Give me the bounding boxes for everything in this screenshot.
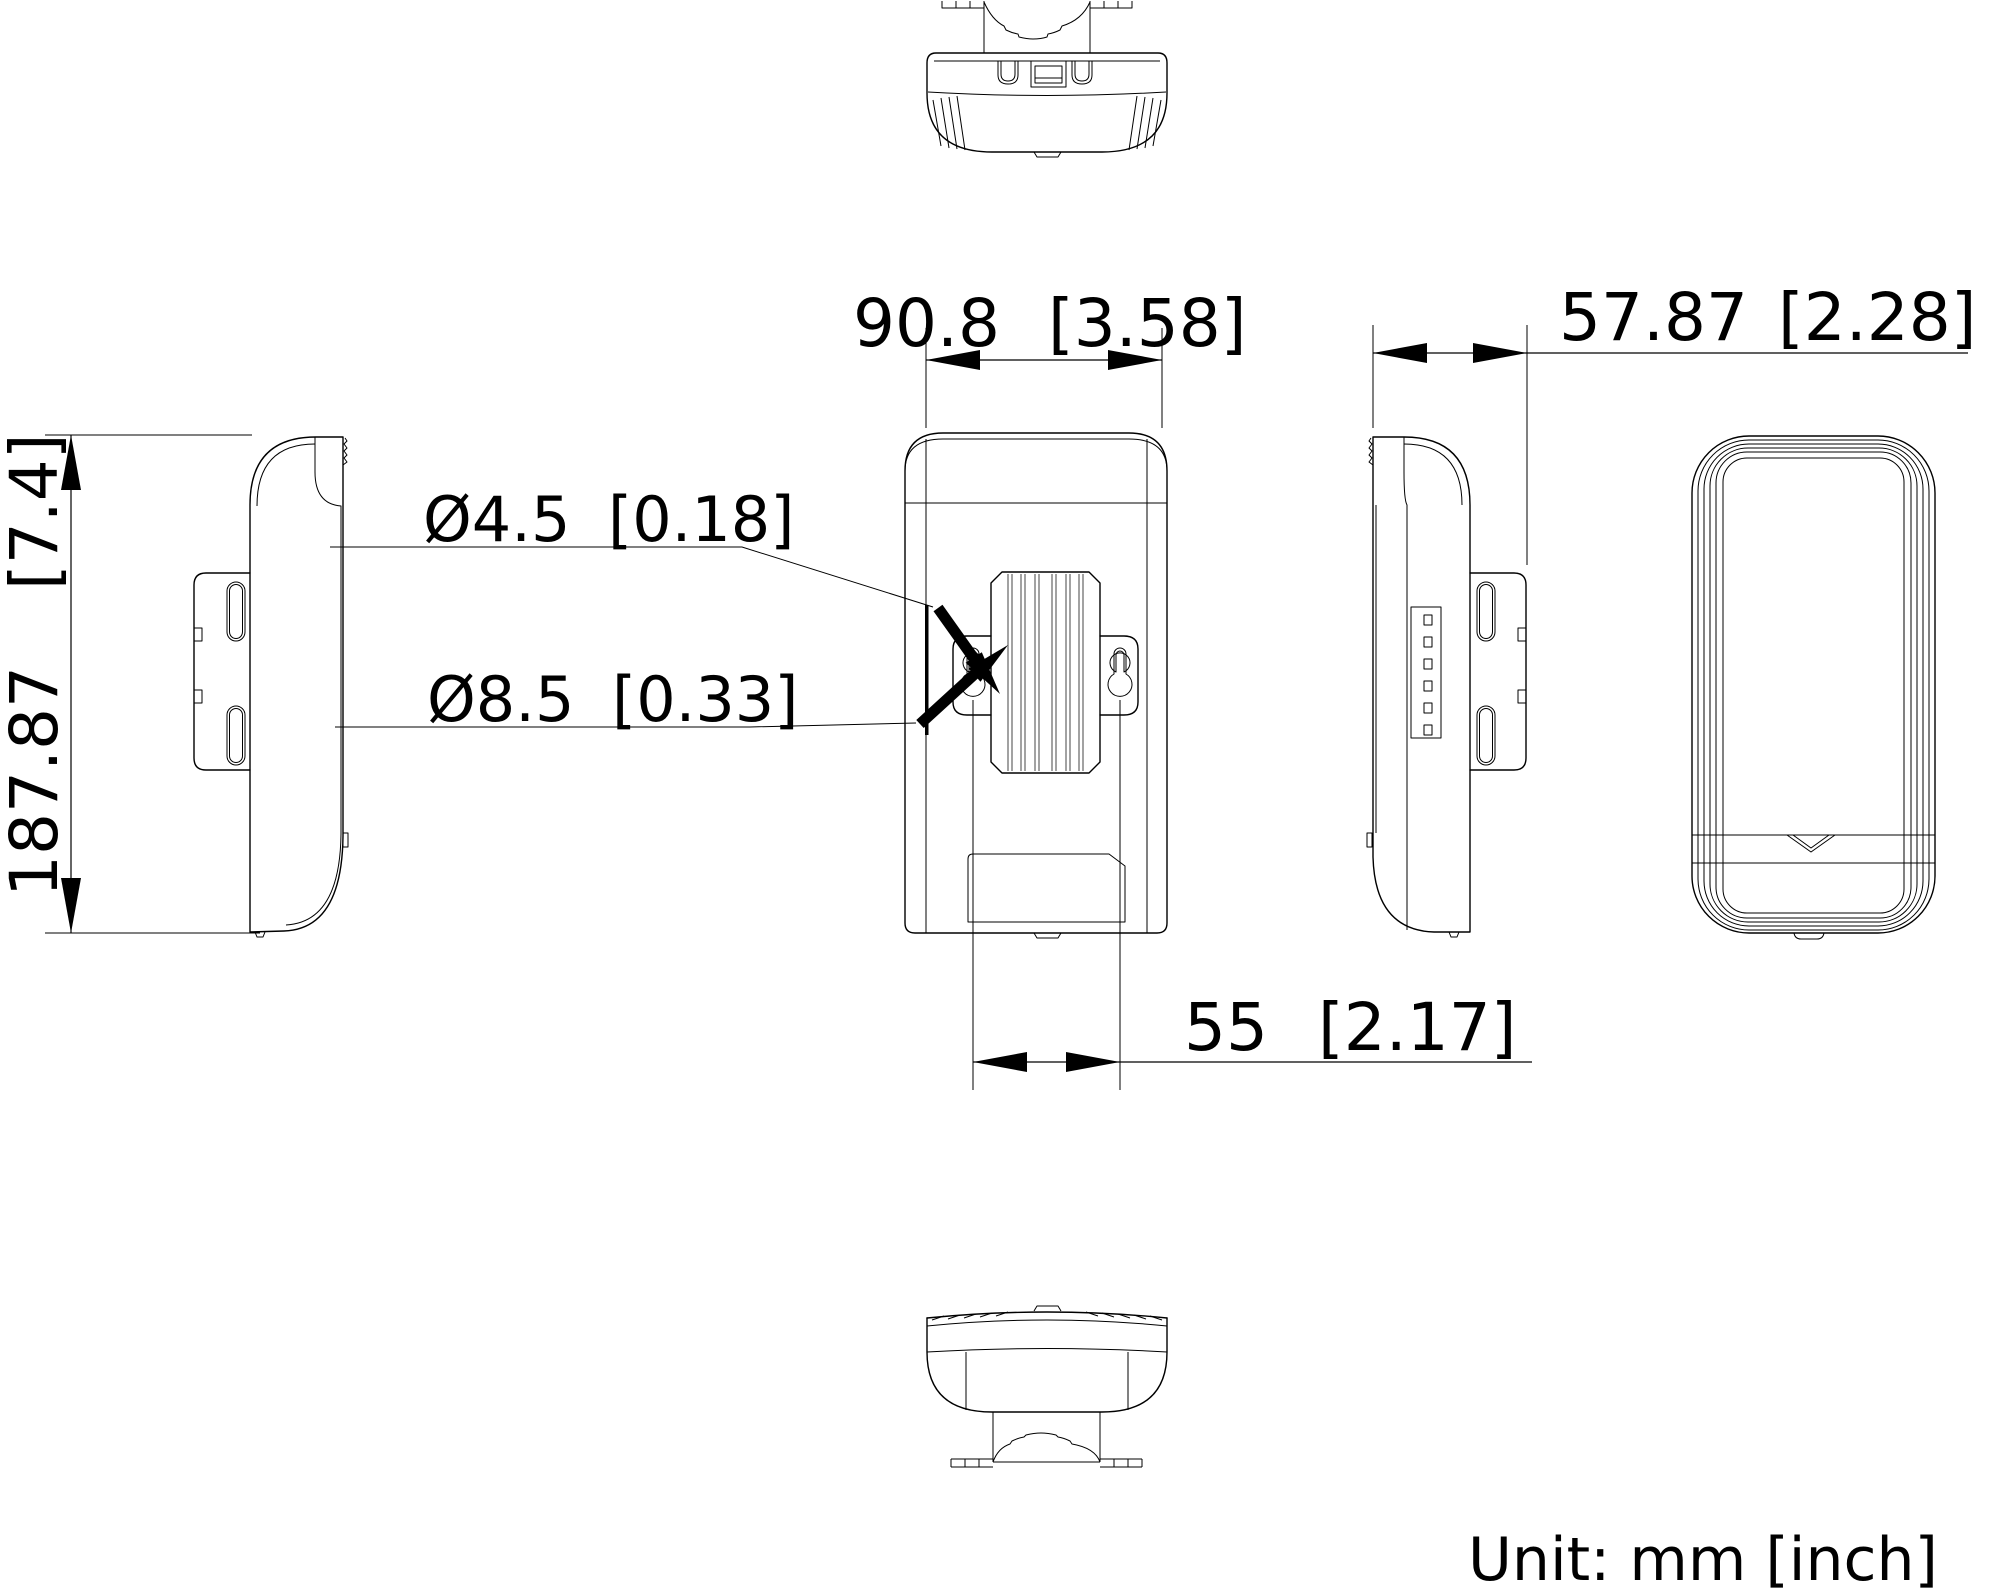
right-side-view: [1367, 437, 1526, 937]
dim-hole-spacing: 55 [2.17]: [973, 700, 1532, 1090]
bottom-view-outline: [927, 1318, 1167, 1412]
back-view-outline: [905, 433, 1167, 933]
dim-width-mm: 90.8: [853, 285, 1000, 362]
heatsink-fins: [1008, 574, 1083, 771]
right-bracket: [1470, 573, 1526, 770]
side-button-right: [1367, 833, 1372, 847]
dim-width-inch: [3.58]: [1048, 285, 1246, 362]
front-view-outline: [1692, 436, 1935, 933]
label-circle-mm: Ø8.5: [427, 663, 574, 736]
front-face: [1723, 458, 1904, 913]
front-chevron: [1787, 835, 1835, 852]
dim-depth-inch: [2.28]: [1778, 279, 1976, 356]
clamp-tab-right: [1090, 1, 1132, 8]
clamp-tab-left: [942, 1, 984, 8]
side-button: [343, 833, 348, 847]
label-panel: [968, 854, 1125, 922]
terminal-block: [1411, 607, 1441, 738]
clamp-tab-right-bottom: [1100, 1459, 1142, 1467]
heatsink: [991, 572, 1100, 773]
top-view: [927, 1, 1167, 157]
dim-arrow-right: [1066, 1052, 1120, 1072]
left-bracket: [194, 573, 250, 770]
right-view-outline: [1373, 437, 1470, 932]
bottom-view: [927, 1306, 1167, 1467]
leader-keyhole-circle: Ø8.5 [0.33]: [335, 645, 1008, 736]
front-view: [1692, 436, 1935, 939]
dim-depth-mm: 57.87: [1559, 279, 1748, 356]
left-side-view: [194, 437, 348, 937]
keyhole-right: [1108, 648, 1132, 696]
pole-clamp-dome: [993, 1433, 1100, 1462]
drawing-canvas: 90.8 [3.58] 57.87 [2.28] 187.87 [7.4] Ø4…: [0, 0, 2000, 1595]
left-view-outline: [250, 437, 343, 932]
dim-body-height: 187.87 [7.4]: [0, 434, 260, 933]
dim-body-width: 90.8 [3.58]: [853, 285, 1246, 428]
pole-clamp-arc: [984, 2, 1090, 39]
dim-height-inch: [7.4]: [0, 434, 73, 590]
label-circle-inch: [0.33]: [612, 663, 798, 736]
back-view: [905, 433, 1167, 938]
label-slot-mm: Ø4.5: [423, 483, 570, 556]
dim-arrow-right: [1473, 343, 1527, 363]
label-slot-inch: [0.18]: [608, 483, 794, 556]
technical-drawing-sheet: 90.8 [3.58] 57.87 [2.28] 187.87 [7.4] Ø4…: [0, 0, 2000, 1595]
dim-body-depth: 57.87 [2.28]: [1373, 279, 1976, 565]
unit-note: Unit: mm [inch]: [1468, 1525, 1938, 1595]
clamp-tab-left-bottom: [951, 1459, 993, 1467]
dim-arrow-left: [1373, 343, 1427, 363]
dim-arrow-left: [973, 1052, 1027, 1072]
dim-spacing-inch: [2.17]: [1318, 989, 1516, 1066]
dim-spacing-mm: 55: [1184, 989, 1268, 1066]
dim-height-mm: 187.87: [0, 666, 73, 897]
